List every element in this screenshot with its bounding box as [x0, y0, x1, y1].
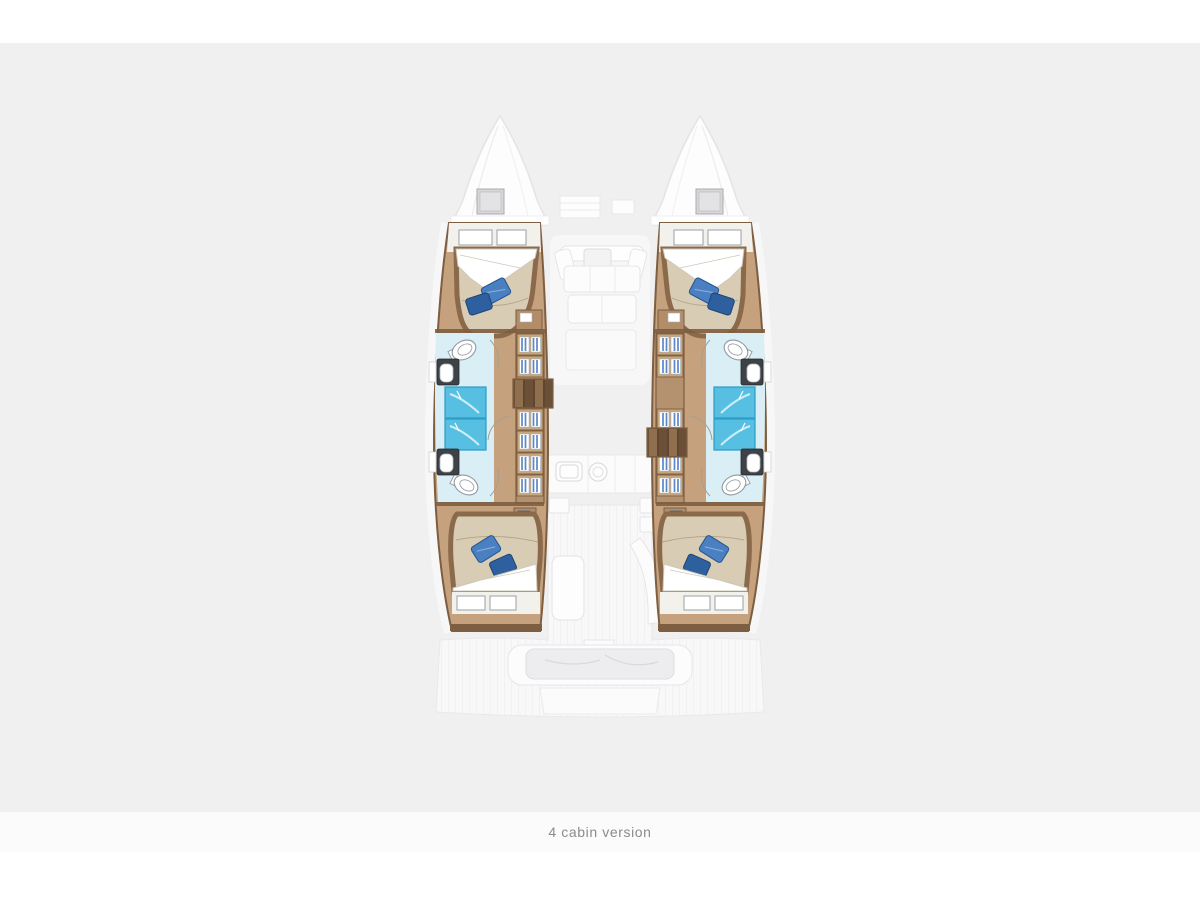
port-hull: [429, 223, 548, 633]
saloon-ghost: [550, 235, 650, 385]
bow-port: [451, 116, 549, 225]
foredeck-locker: [560, 196, 600, 218]
cockpit-table: [552, 556, 584, 620]
catamaran-floorplan: [0, 0, 1200, 900]
companionway-steps-starboard: [647, 428, 687, 457]
caption-band: 4 cabin version: [0, 812, 1200, 852]
bow-starboard: [651, 116, 749, 225]
caption-text: 4 cabin version: [548, 824, 651, 840]
floorplan-canvas: [0, 43, 1200, 812]
galley-burner: [589, 463, 607, 481]
saloon-sofa: [564, 266, 640, 292]
bottom-white-strip: [0, 852, 1200, 900]
companionway-steps-port: [513, 379, 553, 408]
